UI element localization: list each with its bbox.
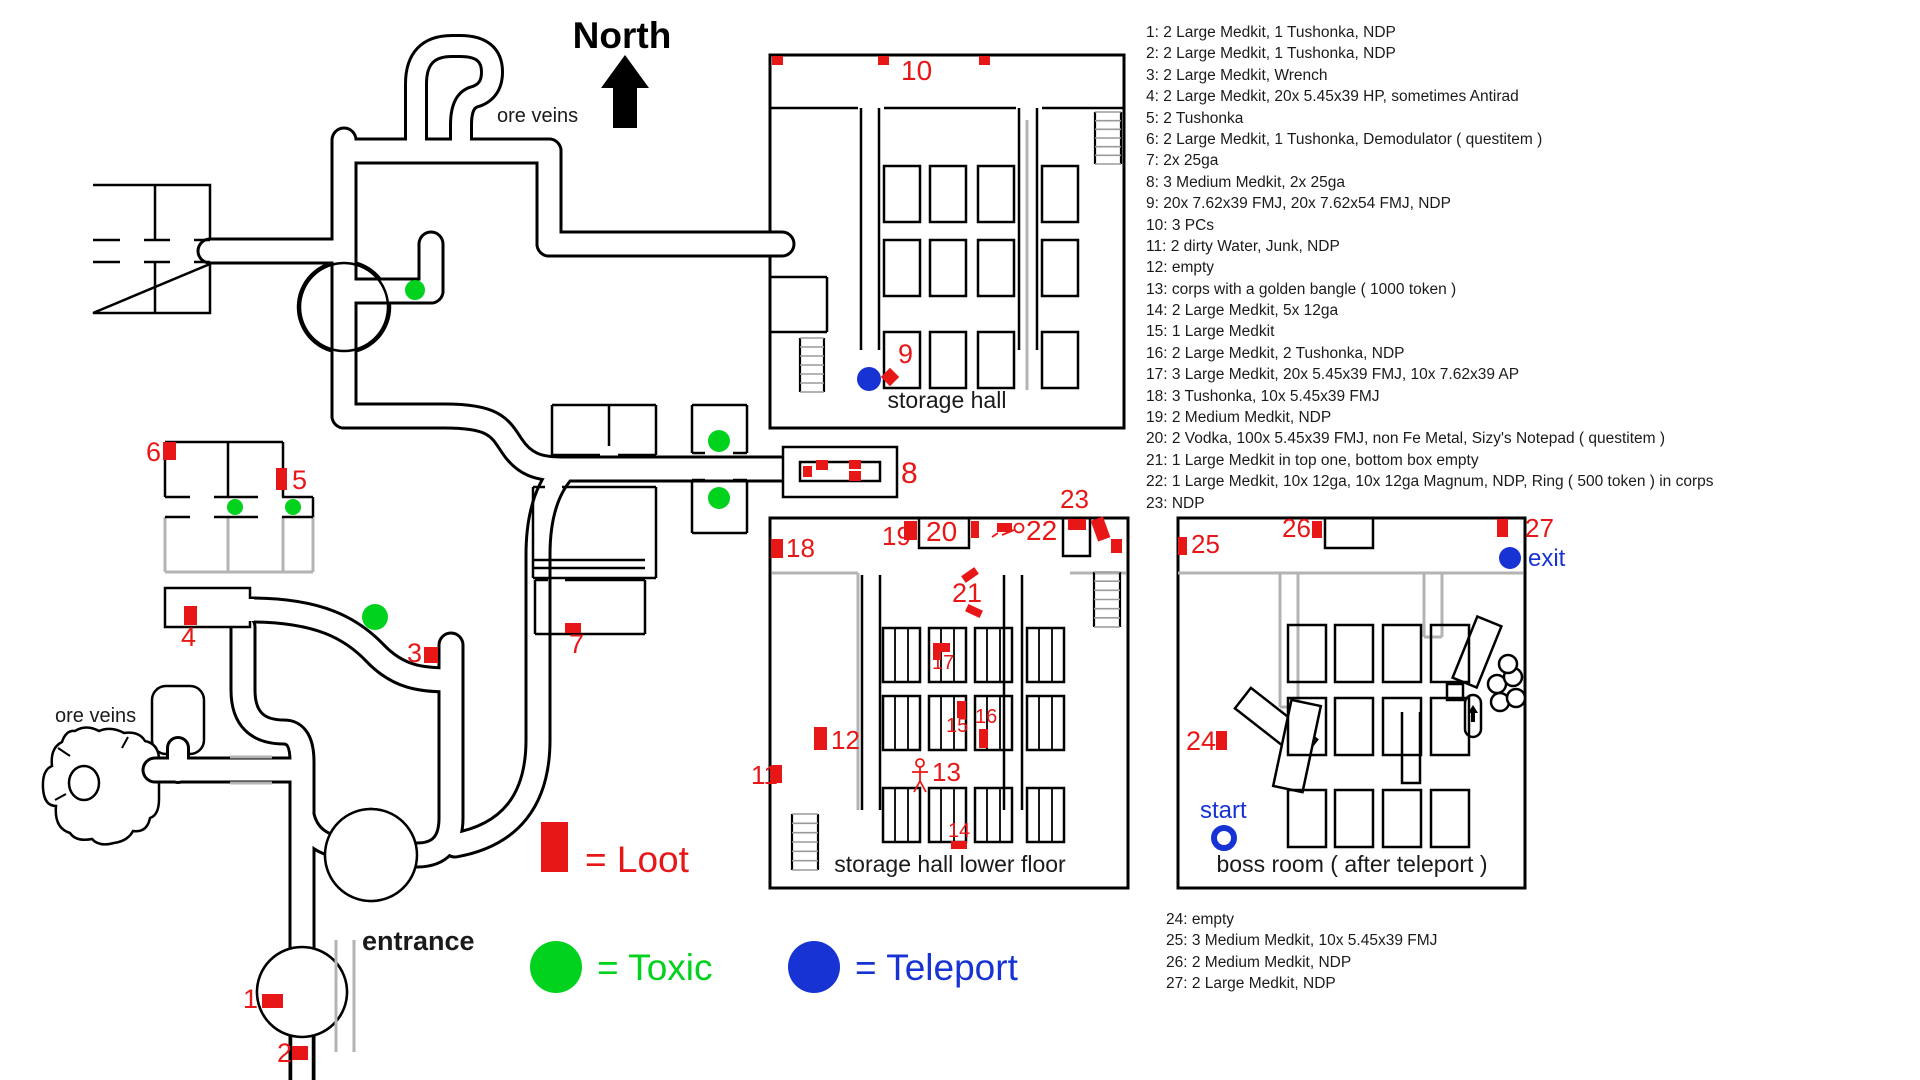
marker-number-25: 25: [1191, 529, 1220, 559]
loot-marker-24: [1216, 731, 1227, 750]
ore-vein-blob: [43, 728, 159, 845]
north-label: North: [573, 15, 672, 56]
legend-teleport-label: = Teleport: [855, 947, 1019, 988]
loot-marker-6: [163, 442, 176, 460]
marker-number-27: 27: [1525, 513, 1554, 543]
loot-marker-25: [1178, 537, 1187, 555]
loot-list-item: 25: 3 Medium Medkit, 10x 5.45x39 FMJ: [1166, 930, 1437, 951]
marker-number-15: 15: [946, 715, 968, 737]
loot-list-item: 13: corps with a golden bangle ( 1000 to…: [1146, 279, 1714, 300]
marker-number-22: 22: [1026, 515, 1057, 546]
marker-number-3: 3: [407, 638, 422, 668]
storage-hall-label: storage hall: [888, 387, 1007, 413]
loot-list-item: 23: NDP: [1146, 493, 1714, 514]
loot-marker-16: [979, 729, 988, 748]
map-page: 1234567891011121314151617181920212223242…: [0, 0, 1920, 1080]
marker-number-5: 5: [292, 465, 307, 495]
loot-marker-box: [933, 643, 950, 652]
storage-hall-lower-label: storage hall lower floor: [834, 851, 1066, 877]
loot-marker-23: [1068, 519, 1086, 530]
marker-number-16: 16: [975, 706, 997, 728]
start-label: start: [1200, 797, 1247, 824]
room-8: [783, 447, 897, 497]
marker-number-7: 7: [569, 629, 584, 659]
loot-marker-26: [1312, 521, 1322, 538]
loot-list-item: 18: 3 Tushonka, 10x 5.45x39 FMJ: [1146, 386, 1714, 407]
toxic-dot: [227, 499, 243, 515]
loot-marker-box: [849, 471, 861, 481]
exit-label: exit: [1528, 545, 1566, 572]
marker-number-26: 26: [1282, 513, 1311, 543]
loot-list-bottom: 24: empty25: 3 Medium Medkit, 10x 5.45x3…: [1166, 909, 1437, 995]
loot-marker-12: [814, 727, 827, 750]
loot-swatch: [541, 822, 568, 872]
loot-marker-box-tilted: [1111, 539, 1122, 553]
loot-marker-box: [933, 652, 941, 660]
tunnel-floors: [155, 46, 790, 1080]
loot-list-item: 26: 2 Medium Medkit, NDP: [1166, 952, 1437, 973]
marker-number-19: 19: [882, 521, 911, 551]
marker-number-11: 11: [751, 760, 778, 790]
tunnel-casings: [155, 46, 790, 1080]
loot-list-item: 15: 1 Large Medkit: [1146, 321, 1714, 342]
barrel: [1507, 689, 1525, 707]
loot-marker-5: [276, 468, 287, 490]
loot-list-item: 12: empty: [1146, 257, 1714, 278]
teleport-dot: [1499, 547, 1521, 569]
loot-list-item: 5: 2 Tushonka: [1146, 108, 1714, 129]
loot-marker-2: [292, 1046, 308, 1060]
marker-number-14: 14: [948, 820, 970, 842]
marker-number-12: 12: [831, 725, 860, 755]
toxic-dot: [708, 487, 730, 509]
loot-marker-27: [1497, 519, 1508, 537]
loot-list-item: 21: 1 Large Medkit in top one, bottom bo…: [1146, 450, 1714, 471]
ore-veins-label-top: ore veins: [497, 105, 578, 127]
boss-room-label: boss room ( after teleport ): [1217, 851, 1488, 877]
room-block-nw: [93, 185, 210, 313]
north-arrow-icon: [601, 55, 649, 128]
loot-list-item: 4: 2 Large Medkit, 20x 5.45x39 HP, somet…: [1146, 86, 1714, 107]
loot-list-item: 11: 2 dirty Water, Junk, NDP: [1146, 236, 1714, 257]
loot-marker-20: [971, 521, 979, 538]
loot-list-item: 7: 2x 25ga: [1146, 150, 1714, 171]
marker-number-20: 20: [926, 516, 957, 547]
entrance-label: entrance: [362, 926, 475, 956]
teleport-dot: [857, 367, 881, 391]
loot-marker-box: [816, 460, 828, 470]
room-4: [165, 588, 254, 627]
loot-list-item: 10: 3 PCs: [1146, 215, 1714, 236]
marker-number-9: 9: [898, 339, 913, 369]
barrel: [1499, 655, 1517, 673]
loot-list-item: 22: 1 Large Medkit, 10x 12ga, 10x 12ga M…: [1146, 471, 1714, 492]
marker-number-23: 23: [1060, 484, 1089, 514]
marker-number-18: 18: [786, 533, 815, 563]
loot-list-item: 17: 3 Large Medkit, 20x 5.45x39 FMJ, 10x…: [1146, 364, 1714, 385]
loot-marker-1: [262, 994, 283, 1008]
marker-number-1: 1: [243, 984, 258, 1014]
marker-number-13: 13: [932, 757, 961, 787]
legend-toxic-label: = Toxic: [597, 947, 713, 988]
loot-list-item: 19: 2 Medium Medkit, NDP: [1146, 407, 1714, 428]
loot-marker-box: [979, 56, 990, 65]
marker-number-4: 4: [181, 622, 196, 652]
teleport-swatch: [788, 941, 840, 993]
loot-list-item: 16: 2 Large Medkit, 2 Tushonka, NDP: [1146, 343, 1714, 364]
ore-veins-label-bottom: ore veins: [55, 705, 136, 727]
loot-marker-box: [997, 523, 1012, 532]
marker-number-8: 8: [901, 457, 918, 490]
toxic-swatch: [530, 941, 582, 993]
room-7-top: [552, 405, 656, 455]
loot-marker-14: [951, 841, 967, 849]
north-indicator: North: [573, 15, 672, 128]
loot-list-item: 1: 2 Large Medkit, 1 Tushonka, NDP: [1146, 22, 1714, 43]
loot-list-item: 27: 2 Large Medkit, NDP: [1166, 973, 1437, 994]
toxic-dot: [362, 604, 388, 630]
marker-number-24: 24: [1186, 726, 1216, 756]
loot-list-item: 2: 2 Large Medkit, 1 Tushonka, NDP: [1146, 43, 1714, 64]
marker-number-2: 2: [277, 1038, 292, 1068]
loot-marker-3: [424, 647, 438, 663]
marker-number-10: 10: [901, 55, 932, 86]
loot-marker-18: [771, 539, 783, 558]
loot-list-item: 20: 2 Vodka, 100x 5.45x39 FMJ, non Fe Me…: [1146, 428, 1714, 449]
toxic-dot: [405, 280, 425, 300]
loot-marker-box: [772, 56, 783, 65]
loot-list-item: 6: 2 Large Medkit, 1 Tushonka, Demodulat…: [1146, 129, 1714, 150]
legend-loot-label: = Loot: [585, 839, 690, 880]
marker-number-6: 6: [146, 437, 161, 467]
toxic-dot: [708, 430, 730, 452]
loot-list-item: 24: empty: [1166, 909, 1437, 930]
toxic-dot: [285, 499, 301, 515]
loot-marker-box: [878, 56, 889, 65]
loot-marker-box: [803, 466, 812, 477]
loot-list-item: 3: 2 Large Medkit, Wrench: [1146, 65, 1714, 86]
loot-list-item: 14: 2 Large Medkit, 5x 12ga: [1146, 300, 1714, 321]
marker-number-21: 21: [952, 578, 982, 608]
loot-list-top: 1: 2 Large Medkit, 1 Tushonka, NDP2: 2 L…: [1146, 22, 1714, 514]
loot-marker-box: [849, 460, 861, 469]
loot-list-item: 8: 3 Medium Medkit, 2x 25ga: [1146, 172, 1714, 193]
loot-list-item: 9: 20x 7.62x39 FMJ, 20x 7.62x54 FMJ, NDP: [1146, 193, 1714, 214]
